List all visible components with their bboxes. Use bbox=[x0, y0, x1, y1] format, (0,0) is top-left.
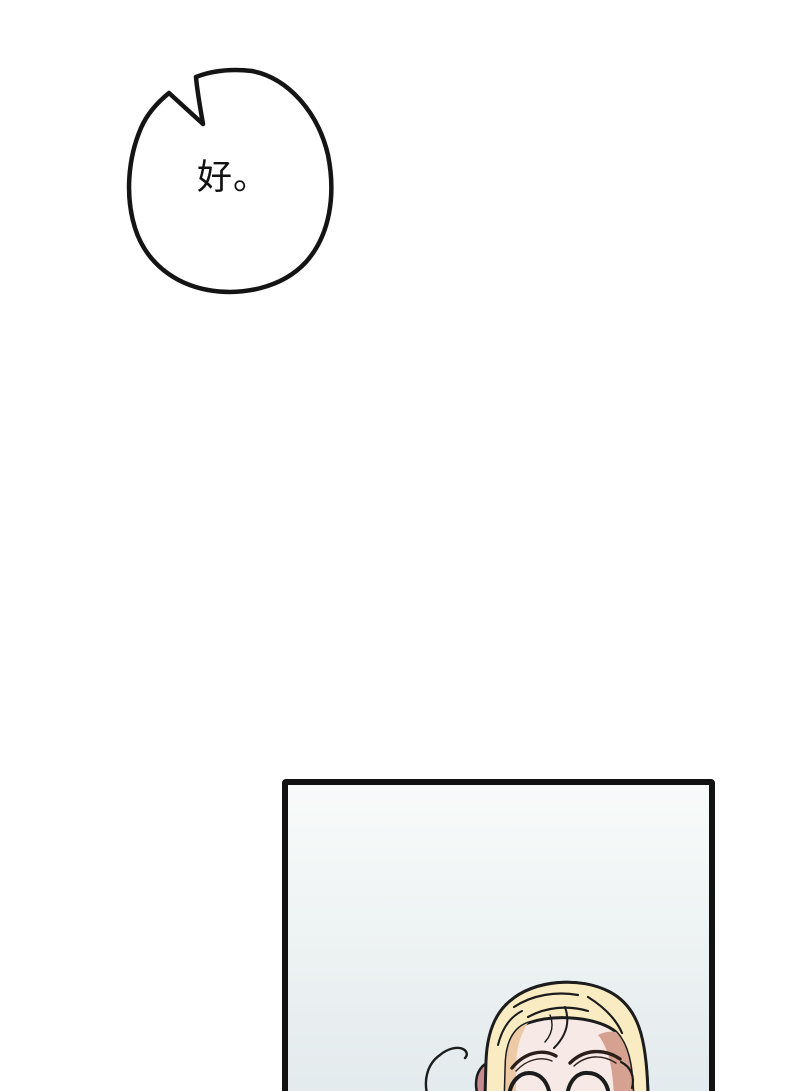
comic-panel bbox=[282, 779, 715, 1091]
hair-wisp-line bbox=[426, 1048, 467, 1091]
character-illustration bbox=[288, 785, 709, 1091]
comic-page: 好。 bbox=[0, 0, 800, 1091]
speech-bubble-text: 好。 bbox=[172, 158, 294, 198]
